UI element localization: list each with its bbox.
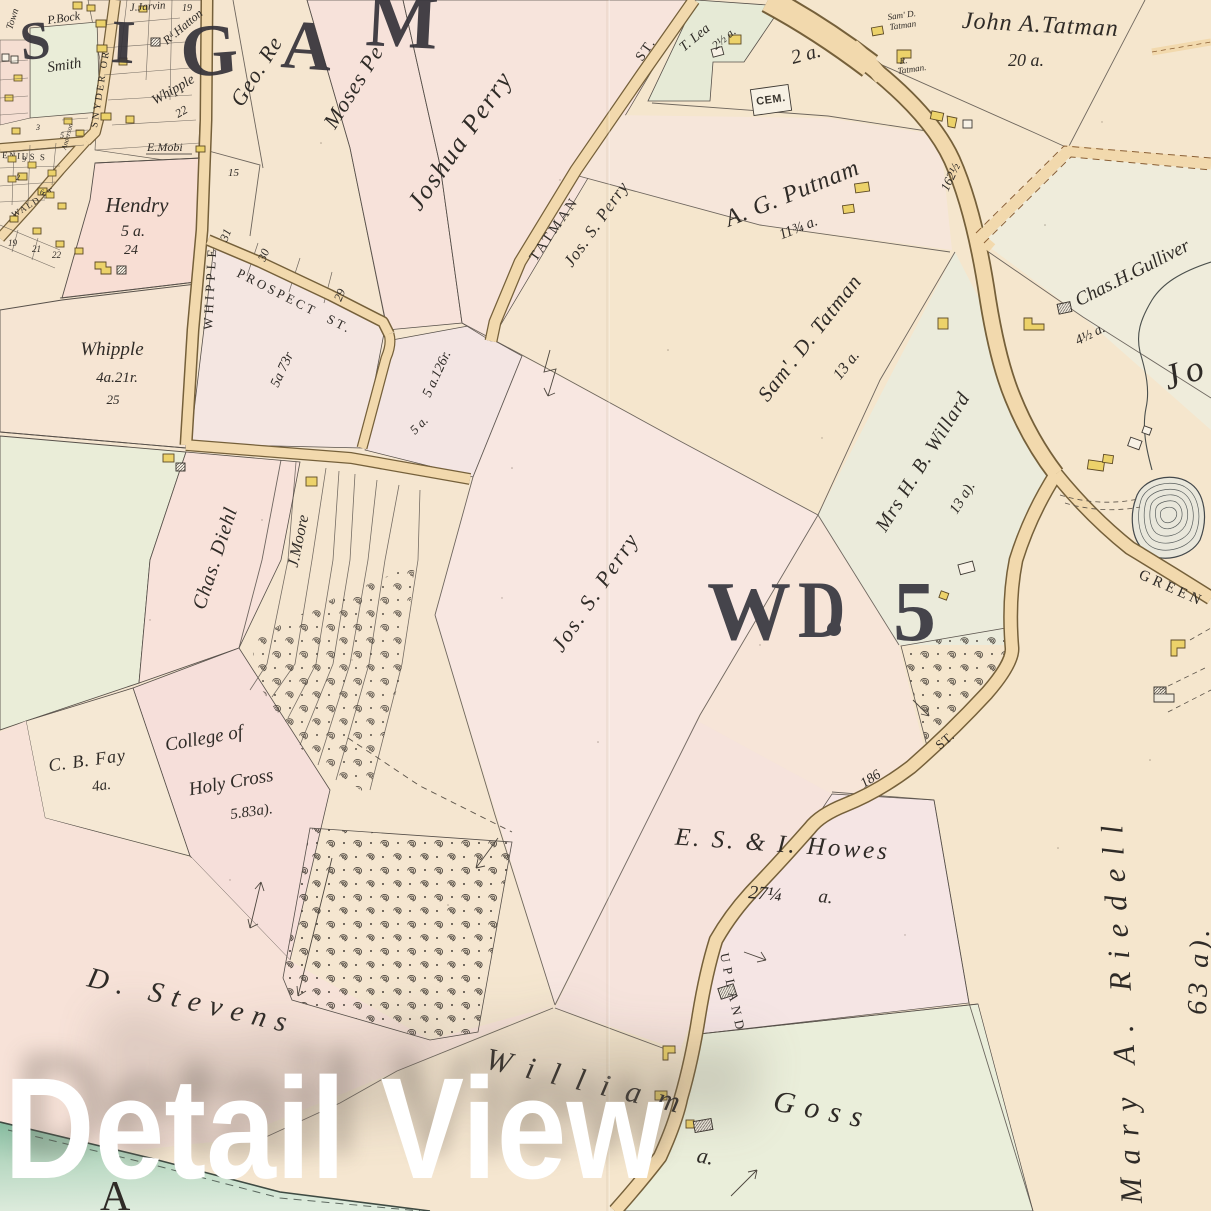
svg-text:Whipple: Whipple	[80, 339, 143, 360]
svg-text:W: W	[707, 565, 791, 658]
svg-text:25: 25	[107, 392, 121, 407]
svg-text:Hendry: Hendry	[105, 193, 170, 217]
svg-text:A: A	[279, 6, 335, 86]
svg-text:D: D	[798, 565, 845, 656]
svg-text:20 a.: 20 a.	[1008, 50, 1044, 70]
svg-text:Detail View: Detail View	[4, 1048, 665, 1209]
svg-text:19: 19	[8, 238, 18, 248]
svg-text:4a.: 4a.	[91, 777, 112, 795]
svg-text:I: I	[109, 8, 137, 77]
svg-text:5 a.: 5 a.	[121, 223, 145, 240]
svg-text:G: G	[177, 8, 240, 94]
svg-text:5: 5	[60, 131, 64, 140]
svg-text:4a.21r.: 4a.21r.	[96, 370, 138, 386]
svg-text:24: 24	[124, 243, 138, 258]
svg-text:E.Mobi: E.Mobi	[146, 140, 183, 154]
svg-text:S: S	[17, 9, 53, 72]
svg-text:M: M	[364, 0, 440, 66]
svg-text:15: 15	[228, 167, 240, 179]
svg-text:6: 6	[40, 188, 44, 197]
svg-text:63 a).: 63 a).	[1182, 925, 1211, 1015]
svg-text:5: 5	[893, 563, 936, 659]
svg-text:9: 9	[22, 155, 26, 164]
svg-text:22: 22	[52, 250, 62, 260]
svg-text:a.: a.	[818, 886, 834, 908]
svg-text:27¼: 27¼	[748, 882, 783, 906]
svg-text:3: 3	[35, 123, 40, 132]
svg-text:2: 2	[16, 173, 20, 182]
svg-text:21: 21	[32, 244, 41, 254]
